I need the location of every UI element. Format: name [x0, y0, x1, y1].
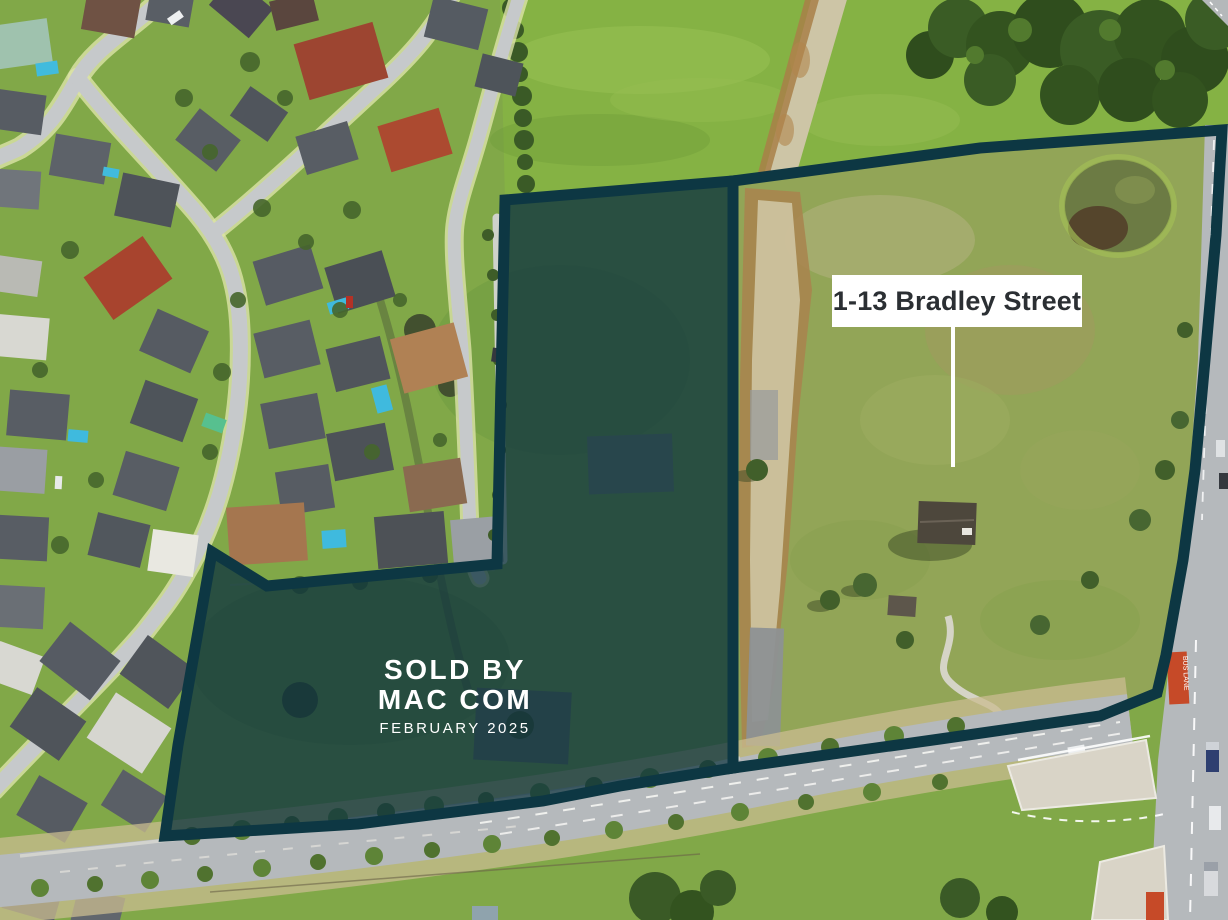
- sold-by-text: SOLD BY: [305, 655, 605, 685]
- sold-annotation: SOLD BY MAC COM FEBRUARY 2025: [305, 655, 605, 737]
- pond: [1062, 157, 1174, 255]
- label-pointer-line: [951, 327, 955, 467]
- aerial-listing-photo: BUS LANE 1-13 Bradley Street SOLD BY MAC…: [0, 0, 1228, 920]
- agency-name-text: MAC COM: [305, 685, 605, 715]
- aerial-photo-canvas: BUS LANE: [0, 0, 1228, 920]
- parcel-address-label: 1-13 Bradley Street: [832, 275, 1082, 327]
- shed: [472, 906, 498, 920]
- bus-lane-text: BUS LANE: [1181, 656, 1189, 691]
- right-parcel-terrain: [733, 130, 1222, 768]
- sold-date-text: FEBRUARY 2025: [305, 720, 605, 737]
- bus-lane-marking: [1146, 892, 1164, 920]
